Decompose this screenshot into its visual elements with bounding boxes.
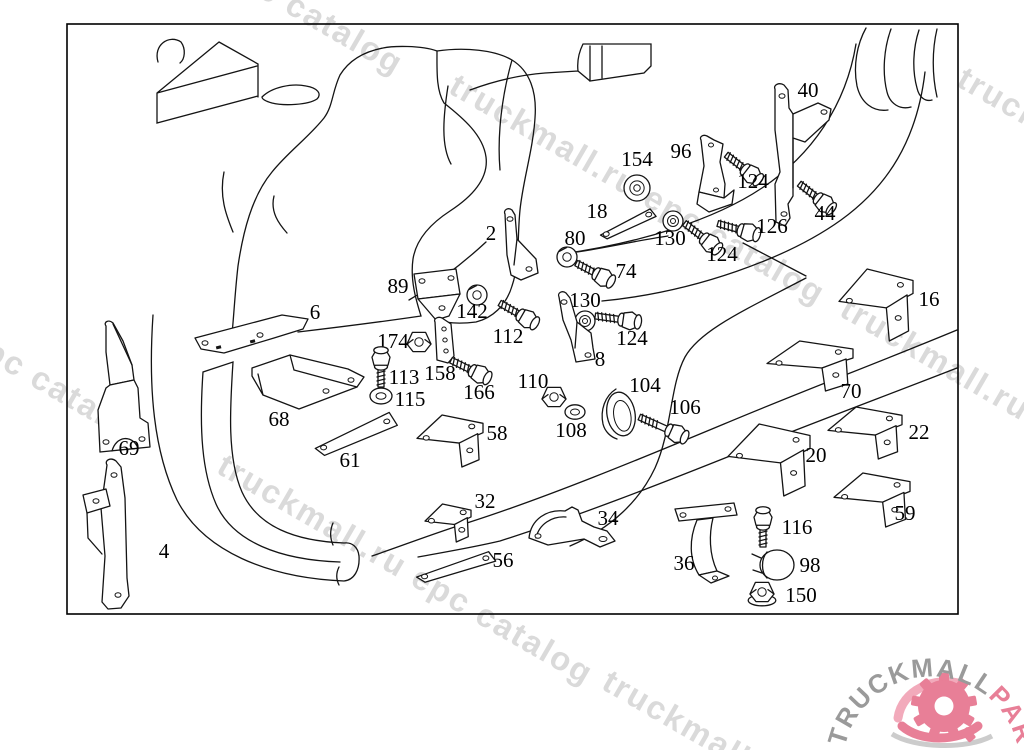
part-150-glyph bbox=[748, 582, 776, 605]
watermark-text-6: truckmall.ru epc catalog bbox=[952, 59, 1024, 305]
part-126-label: 126 bbox=[756, 214, 788, 238]
part-150-label: 150 bbox=[785, 583, 817, 607]
part-20-label: 20 bbox=[806, 443, 827, 467]
part-98-label: 98 bbox=[800, 553, 821, 577]
air-cleaner-drum bbox=[855, 28, 937, 110]
part-130-label: 130 bbox=[569, 288, 601, 312]
part-98-glyph bbox=[752, 550, 794, 580]
part-115-glyph bbox=[370, 388, 392, 404]
part-20-glyph bbox=[728, 424, 810, 496]
part-110-label: 110 bbox=[518, 369, 549, 393]
part-115-label: 115 bbox=[395, 387, 426, 411]
part-6-glyph bbox=[195, 315, 308, 353]
part-4-glyph bbox=[83, 459, 129, 609]
part-16-label: 16 bbox=[919, 287, 940, 311]
watermark-text-0: truckmall.ru epc catalog bbox=[22, 0, 411, 82]
part-56-label: 56 bbox=[493, 548, 514, 572]
part-61-label: 61 bbox=[340, 448, 361, 472]
parts-diagram: truckmall.ru epc catalogtruckmall.ru epc… bbox=[0, 0, 1024, 750]
part-154-label: 154 bbox=[621, 147, 653, 171]
part-130-label: 130 bbox=[654, 226, 686, 250]
part-142-label: 142 bbox=[456, 299, 488, 323]
engine-valve-cover bbox=[157, 42, 258, 123]
part-116-glyph bbox=[754, 507, 772, 547]
part-44-label: 44 bbox=[815, 201, 837, 225]
part-69-glyph bbox=[98, 321, 150, 452]
part-58-glyph bbox=[417, 415, 483, 467]
part-68-glyph bbox=[252, 355, 364, 409]
part-36-label: 36 bbox=[674, 551, 695, 575]
part-2-label: 2 bbox=[486, 221, 497, 245]
part-106-label: 106 bbox=[669, 395, 701, 419]
part-59-label: 59 bbox=[895, 501, 916, 525]
part-18-label: 18 bbox=[587, 199, 608, 223]
part-70-label: 70 bbox=[841, 379, 862, 403]
part-34-label: 34 bbox=[598, 506, 620, 530]
part-74-glyph bbox=[572, 255, 618, 291]
watermark-layer: truckmall.ru epc catalogtruckmall.ru epc… bbox=[0, 0, 1024, 750]
part-58-label: 58 bbox=[487, 421, 508, 445]
part-89-glyph bbox=[414, 269, 460, 320]
part-68-label: 68 bbox=[269, 407, 290, 431]
part-32-glyph bbox=[425, 504, 471, 542]
hook-fitting bbox=[157, 39, 184, 63]
part-80-label: 80 bbox=[565, 226, 586, 250]
part-124-label: 124 bbox=[706, 242, 738, 266]
part-174-glyph bbox=[407, 332, 431, 351]
cab-mount-block bbox=[470, 44, 651, 90]
part-69-label: 69 bbox=[119, 436, 140, 460]
part-22-label: 22 bbox=[909, 420, 930, 444]
part-104-label: 104 bbox=[629, 373, 661, 397]
part-89-label: 89 bbox=[388, 274, 409, 298]
part-2-glyph bbox=[505, 209, 538, 280]
part-124-label: 124 bbox=[737, 169, 769, 193]
part-113-glyph bbox=[372, 347, 390, 387]
part-113-label: 113 bbox=[389, 365, 420, 389]
part-112-label: 112 bbox=[493, 324, 524, 348]
part-158-glyph bbox=[435, 317, 454, 363]
part-96-glyph bbox=[697, 135, 734, 212]
part-154-glyph bbox=[624, 175, 650, 201]
part-116-label: 116 bbox=[782, 515, 813, 539]
engine-contour-lines bbox=[222, 86, 451, 233]
part-124-label: 124 bbox=[616, 326, 648, 350]
part-4-label: 4 bbox=[159, 539, 170, 563]
parts-layer: 4096124154181301241264428074891421121301… bbox=[83, 78, 940, 609]
part-96-label: 96 bbox=[671, 139, 692, 163]
teardrop-boss bbox=[262, 85, 319, 105]
part-108-label: 108 bbox=[555, 418, 587, 442]
part-166-label: 166 bbox=[463, 380, 495, 404]
part-32-label: 32 bbox=[475, 489, 496, 513]
part-6-label: 6 bbox=[310, 300, 321, 324]
part-74-label: 74 bbox=[616, 259, 638, 283]
part-80-glyph bbox=[557, 247, 577, 267]
part-22-glyph bbox=[828, 407, 902, 459]
part-8-label: 8 bbox=[595, 347, 606, 371]
part-40-label: 40 bbox=[798, 78, 819, 102]
part-158-label: 158 bbox=[424, 361, 456, 385]
